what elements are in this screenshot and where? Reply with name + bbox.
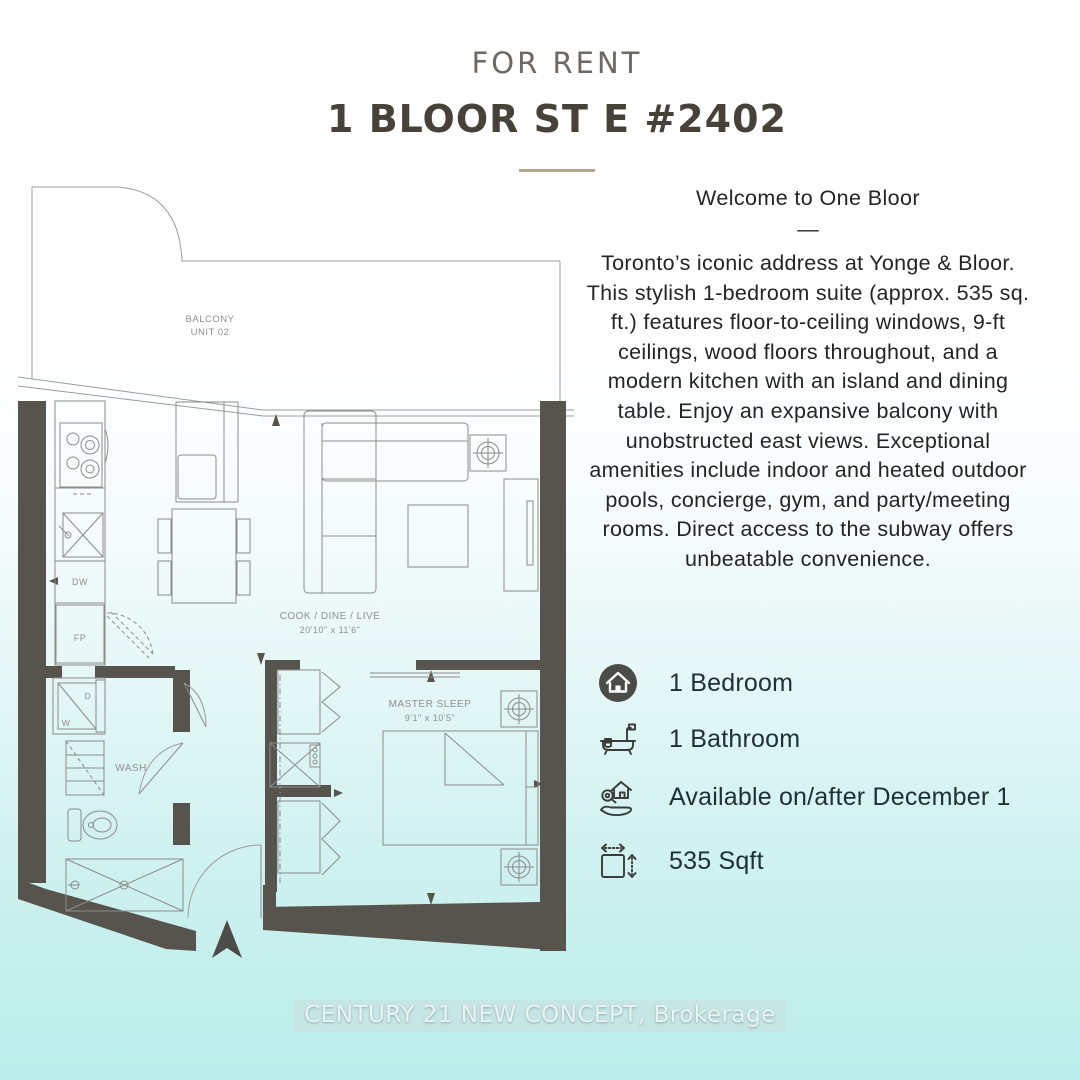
living-room-label: COOK / DINE / LIVE	[280, 611, 381, 622]
wash-label: WASH	[115, 763, 147, 774]
footer: CENTURY 21 NEW CONCEPT, Brokerage	[0, 1000, 1080, 1032]
living-room-dims: 20'10" x 11'6"	[300, 625, 361, 635]
for-rent-label: FOR RENT	[327, 46, 787, 80]
welcome-heading: Welcome to One Bloor	[578, 186, 1038, 211]
balcony-label: BALCONY	[186, 314, 235, 325]
floor-plan: BALCONY UNIT 02 COOK / DINE / LIVE 20'10…	[18, 183, 578, 961]
availability-icon	[596, 775, 640, 819]
bathroom-icon	[596, 717, 640, 761]
kitchen-island	[176, 402, 238, 502]
ceiling-light-icon	[470, 435, 506, 471]
entry-arrow	[212, 920, 242, 958]
feature-label: 535 Sqft	[669, 847, 764, 876]
feature-size: 535 Sqft	[596, 839, 764, 883]
feature-bedrooms: 1 Bedroom	[596, 661, 793, 705]
ceiling-light-icon	[501, 691, 537, 727]
balcony-outline	[18, 187, 574, 416]
listing-flyer: FOR RENT 1 BLOOR ST E #2402	[0, 0, 1080, 1080]
ceiling-light-icon	[501, 849, 537, 885]
sofa	[304, 411, 468, 593]
description-text: Toronto’s iconic address at Yonge & Bloo…	[578, 249, 1038, 575]
feature-availability: Available on/after December 1	[596, 775, 1011, 819]
washer-label: W	[62, 718, 71, 728]
dash-separator: —	[578, 217, 1038, 242]
entry-door	[188, 845, 261, 918]
listing-header: FOR RENT 1 BLOOR ST E #2402	[327, 46, 787, 172]
balcony-unit-label: UNIT 02	[191, 327, 230, 338]
feature-bathrooms: 1 Bathroom	[596, 717, 800, 761]
dishwasher-label: DW	[72, 577, 88, 587]
sqft-icon	[596, 839, 640, 883]
feature-label: 1 Bedroom	[669, 669, 793, 698]
feature-label: Available on/after December 1	[669, 783, 1011, 812]
coffee-table	[408, 505, 468, 567]
tv-console	[504, 479, 538, 591]
description-block: Welcome to One Bloor — Toronto’s iconic …	[578, 186, 1038, 575]
dining-table	[158, 509, 250, 603]
header-divider	[519, 169, 595, 172]
wall-ticks	[49, 414, 543, 905]
bedroom-dims: 9'1" x 10'5"	[405, 713, 455, 723]
page-title: 1 BLOOR ST E #2402	[327, 97, 787, 141]
feature-label: 1 Bathroom	[669, 725, 800, 754]
hall-closets	[270, 670, 340, 883]
bedroom-icon	[596, 661, 640, 705]
walls	[18, 401, 566, 951]
brokerage-name: CENTURY 21 NEW CONCEPT, Brokerage	[294, 1000, 786, 1032]
bedroom-label: MASTER SLEEP	[389, 699, 472, 710]
fridge-label: FP	[74, 633, 87, 643]
dryer-label: D	[85, 691, 92, 701]
kitchen	[55, 401, 153, 665]
